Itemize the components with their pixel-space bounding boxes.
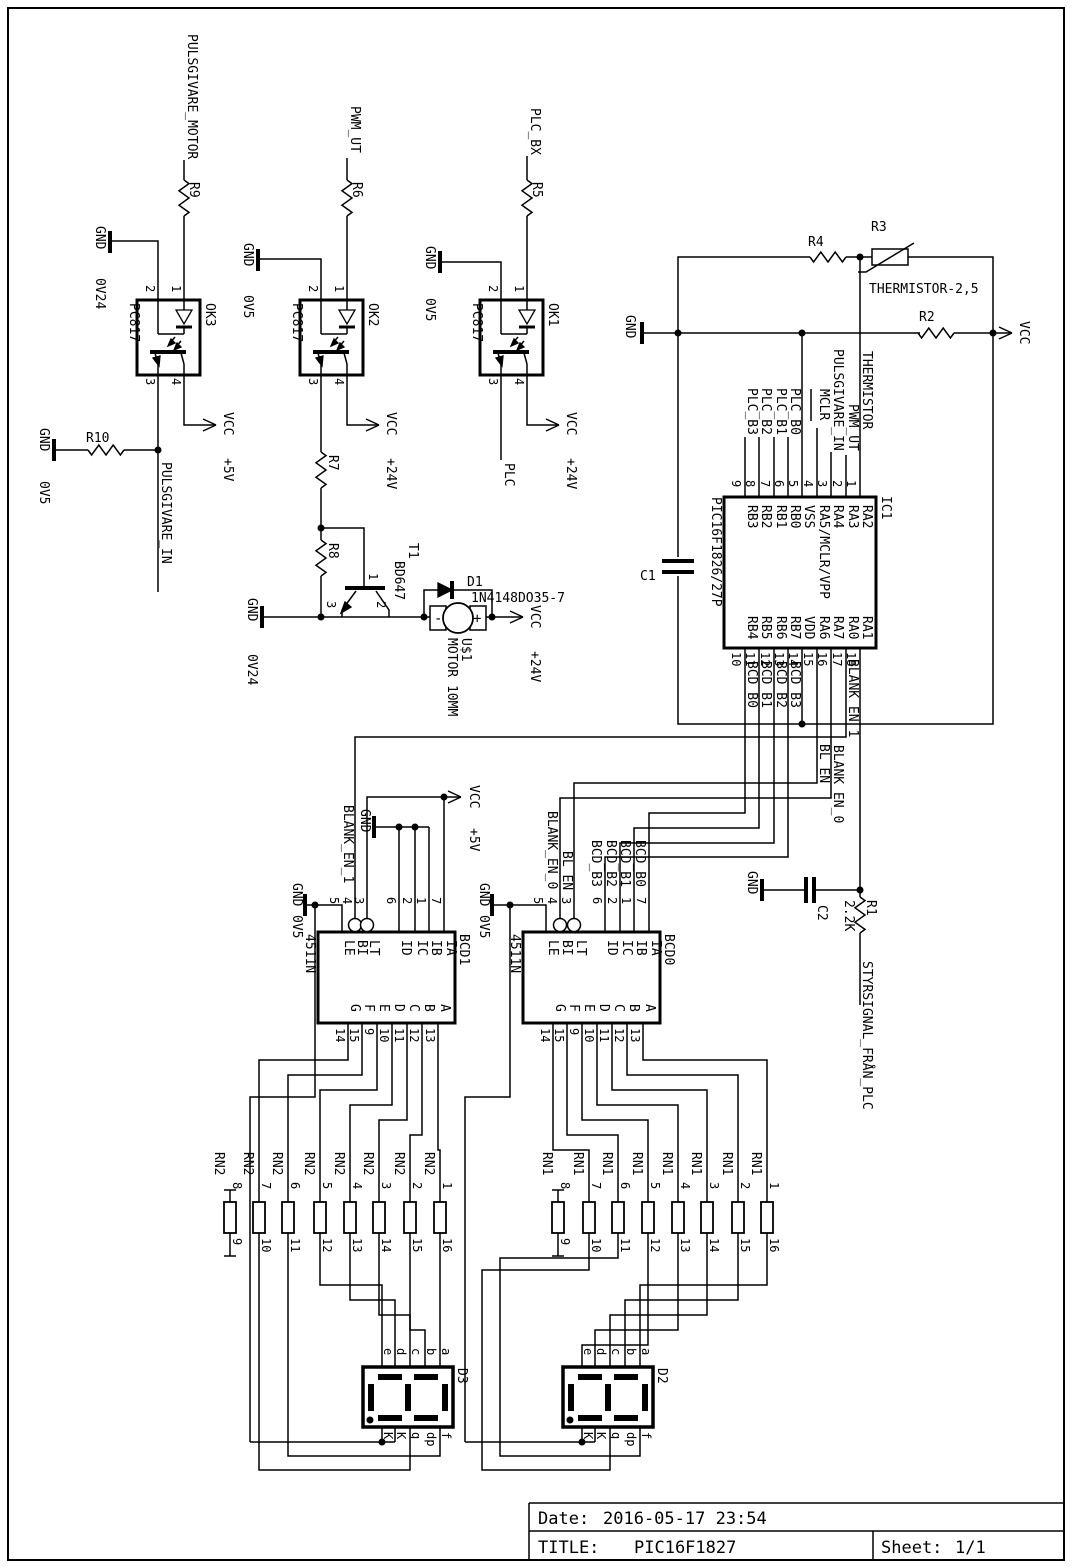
bcd0-pin4: 4 xyxy=(545,897,559,904)
ok3-gnd-label: GND xyxy=(92,226,107,250)
rn1-3-ref: RN1 xyxy=(599,1152,614,1175)
d3-pin-k1: K xyxy=(381,1432,395,1440)
ok1-vcc-value: +24V xyxy=(563,458,578,489)
vcc-main: VCC xyxy=(1016,321,1031,344)
net-plc-b2: PLC_B2 xyxy=(758,388,773,435)
bcd1-ic: IC xyxy=(414,940,429,956)
d3-pin-e: e xyxy=(381,1348,395,1355)
ok1-ref: OK1 xyxy=(545,303,560,326)
rn2-2-top: 7 xyxy=(259,1182,273,1189)
bcd1-pin1: 1 xyxy=(414,897,428,904)
bcd1-pin15: 15 xyxy=(347,1028,361,1042)
ok2-part-pc817: PC817 xyxy=(289,303,304,342)
rn1-6-ref: RN1 xyxy=(688,1152,703,1175)
bcd1-pin3: 3 xyxy=(352,897,366,904)
bcd0-pin15: 15 xyxy=(552,1028,566,1042)
ic1-ra3: RA3 xyxy=(845,505,860,528)
rn1-6-bottom: 14 xyxy=(707,1238,721,1252)
bcd0-net-bcd-b2: BCD_B2 xyxy=(603,840,618,887)
rn2-1-top: 8 xyxy=(230,1182,244,1189)
bcd1-pin6: 6 xyxy=(384,897,398,904)
r1-value: 2.2K xyxy=(841,900,856,931)
rn2-6-bottom: 14 xyxy=(379,1238,393,1252)
ic1-ra2: RA2 xyxy=(859,505,874,528)
d1-ref: D1 xyxy=(467,575,483,590)
rn2-6-top: 3 xyxy=(379,1182,393,1189)
net-bl-en-ic: BL_EN xyxy=(816,744,831,783)
net-bcd-b0-ic: BCD_B0 xyxy=(744,661,759,708)
d3-pin-f: f xyxy=(439,1432,453,1439)
d1-part: 1N4148DO35-7 xyxy=(471,591,565,606)
d3-pin-k2: K xyxy=(394,1432,408,1440)
rn2-2-bottom: 10 xyxy=(259,1238,273,1252)
ic1-rb3: RB3 xyxy=(744,505,759,528)
net-blank-en-0-ic: BLANK_EN_0 xyxy=(830,745,845,823)
ic1-pin2: 2 xyxy=(830,480,844,487)
rn1-5-bottom: 13 xyxy=(678,1238,692,1252)
bcd0-pin10: 10 xyxy=(582,1028,596,1042)
rn1-8-ref: RN1 xyxy=(748,1152,763,1175)
net-pulsgivare-in: PULSGIVARE_IN xyxy=(158,462,173,564)
rn1-1-top: 8 xyxy=(558,1182,572,1189)
ic1-rb4: RB4 xyxy=(744,616,759,640)
ok2-pin3: 3 xyxy=(306,378,320,385)
ic1-ra0: RA0 xyxy=(845,616,860,639)
bcd1-pin10: 10 xyxy=(377,1028,391,1042)
title-block-date-value: 2016-05-17 23:54 xyxy=(603,1509,767,1529)
bcd1-pin13: 13 xyxy=(423,1028,437,1042)
ok3-pin3: 3 xyxy=(143,378,157,385)
bcd0-part: 4511N xyxy=(507,934,522,973)
ok1-gnd-net-0v5: 0V5 xyxy=(422,298,437,321)
d3-pin-d: d xyxy=(394,1348,408,1355)
net-styrsignal: STYRSIGNAL_FRÅN_PLC xyxy=(859,961,875,1110)
ok1-pin4: 4 xyxy=(512,378,526,385)
bcd0-ia: IA xyxy=(648,940,663,956)
rn1-7-ref: RN1 xyxy=(719,1152,734,1175)
t1-ref: T1 xyxy=(405,543,420,559)
ic1-pin7: 7 xyxy=(758,480,772,487)
d2-pin-k2: K xyxy=(594,1432,608,1440)
ic1-pin1: 1 xyxy=(844,480,858,487)
ok2-pin1: 1 xyxy=(332,285,346,292)
r1-ref: R1 xyxy=(863,900,878,916)
ic1-rb6: RB6 xyxy=(773,616,788,639)
bcd0-pin13: 13 xyxy=(628,1028,642,1042)
net-mclr: MCLR xyxy=(816,389,831,420)
title-block-title-label: TITLE: xyxy=(538,1538,599,1558)
ic1-pin9: 9 xyxy=(729,480,743,487)
ic1-pin10: 10 xyxy=(729,652,743,666)
d2-pin-e: e xyxy=(581,1348,595,1355)
r4-ref: R4 xyxy=(808,235,824,250)
bcd0-net-bcd-b0: BCD_B0 xyxy=(632,840,647,887)
bcd0-le: LE xyxy=(545,940,560,956)
ok1-gnd-label: GND xyxy=(422,246,437,270)
rn2-5-ref: RN2 xyxy=(331,1152,346,1175)
bcd0-pin11: 11 xyxy=(597,1028,611,1042)
bcd1-ia: IA xyxy=(443,940,458,956)
rn2-7-bottom: 15 xyxy=(410,1238,424,1252)
bcd1-c: C xyxy=(406,1004,421,1012)
bcd0-f: F xyxy=(566,1004,581,1012)
rn1-5-ref: RN1 xyxy=(659,1152,674,1175)
motor-ref: U$1 xyxy=(458,638,473,661)
rn1-4-ref: RN1 xyxy=(629,1152,644,1175)
t1-part-bd647: BD647 xyxy=(391,561,406,600)
bcd1-pin14: 14 xyxy=(333,1028,347,1042)
rn1-2-ref: RN1 xyxy=(570,1152,585,1175)
bcd0-pin1: 1 xyxy=(619,897,633,904)
bcd0-d: D xyxy=(596,1004,611,1012)
bcd0-ic: IC xyxy=(619,940,634,956)
gnd-main: GND xyxy=(622,315,637,339)
ic1-ra6: RA6 xyxy=(816,616,831,639)
bcd1-net-blank-en-1: BLANK_EN_1 xyxy=(340,805,355,883)
r3-ref: R3 xyxy=(871,220,887,235)
bcd0-bi: BI xyxy=(559,940,574,956)
bcd1-le: LE xyxy=(341,940,356,956)
bcd1-pin9: 9 xyxy=(362,1028,376,1035)
rn2-7-top: 2 xyxy=(410,1182,424,1189)
ic1-rb2: RB2 xyxy=(758,505,773,528)
bcd0-pin9: 9 xyxy=(567,1028,581,1035)
net-plc-b3: PLC_B3 xyxy=(744,388,759,435)
rn2-8-top: 1 xyxy=(440,1182,454,1189)
bcd1-lt: LT xyxy=(366,940,381,956)
net-bcd-b2-ic: BCD_B2 xyxy=(773,661,788,708)
d2-pin-d: d xyxy=(594,1348,608,1355)
bcd0-c: C xyxy=(611,1004,626,1012)
r3-part: THERMISTOR-2,5 xyxy=(869,282,979,297)
ok3-ref: OK3 xyxy=(202,303,217,326)
net-bcd-b1-ic: BCD_B1 xyxy=(758,661,773,708)
title-block-sheet-label: Sheet: xyxy=(881,1538,942,1558)
title-block-title-value: PIC16F1827 xyxy=(634,1538,736,1558)
motor-plus: + xyxy=(473,611,481,627)
c2-ref: C2 xyxy=(814,905,829,921)
ok3-vcc: VCC xyxy=(220,412,235,435)
c2-gnd-label: GND xyxy=(744,871,759,895)
bcd1-pin4: 4 xyxy=(340,897,354,904)
ok1-part-pc817: PC817 xyxy=(469,303,484,342)
ic1-part: PIC16F1826/27P xyxy=(708,497,723,607)
rn2-4-ref: RN2 xyxy=(301,1152,316,1175)
rn2-7-ref: RN2 xyxy=(391,1152,406,1175)
bcd0-net-blank-en-0: BLANK_EN_0 xyxy=(544,811,559,889)
t1-pin2: 2 xyxy=(374,601,388,608)
ok3-r9-ref: R9 xyxy=(186,182,201,198)
ic1-pin3: 3 xyxy=(815,480,829,487)
d3-pin-g: g xyxy=(409,1432,423,1439)
ic1-ra1: RA1 xyxy=(859,616,874,639)
d2-pin-b: b xyxy=(624,1348,638,1355)
ok2-signal-net: PWM_UT xyxy=(347,106,362,153)
ok2-pin4: 4 xyxy=(332,378,346,385)
r10-gnd-label: GND xyxy=(36,428,51,452)
ok3-pin1: 1 xyxy=(169,285,183,292)
ic1-rb0: RB0 xyxy=(787,505,802,528)
motor-minus: - xyxy=(434,611,442,627)
rn1-5-top: 4 xyxy=(678,1182,692,1189)
bcd0-e: E xyxy=(581,1004,596,1012)
ok1-pin3: 3 xyxy=(486,378,500,385)
bcd0-b: B xyxy=(626,1004,641,1012)
bcd0-lt: LT xyxy=(573,940,588,956)
c1-ref: C1 xyxy=(640,569,656,584)
rn2-3-bottom: 11 xyxy=(288,1238,302,1252)
d3-pin-a: a xyxy=(439,1348,453,1355)
ok2-ref: OK2 xyxy=(365,303,380,326)
bcd1-pin5: 5 xyxy=(327,897,341,904)
bcd0-pin6: 6 xyxy=(590,897,604,904)
bcd1-id: ID xyxy=(398,940,413,956)
title-block-date-label: Date: xyxy=(538,1509,589,1529)
d2-pin-f: f xyxy=(639,1432,653,1439)
bcd1-gnd-label: GND xyxy=(289,883,304,907)
rn1-4-bottom: 12 xyxy=(648,1238,662,1252)
ic1-ra4: RA4 xyxy=(830,505,845,529)
ic1-pin16: 16 xyxy=(815,652,829,666)
bcd0-g: G xyxy=(552,1004,567,1012)
bcd0-id: ID xyxy=(604,940,619,956)
rn1-3-bottom: 11 xyxy=(618,1238,632,1252)
schematic-canvas: PULSGIVARE_MOTORR9GND0V2421PC817OK334VCC… xyxy=(0,0,1072,1567)
bcd1-gnd-net-0v5: 0V5 xyxy=(289,915,304,938)
r10-gnd-net-0v5: 0V5 xyxy=(36,481,51,504)
rn2-4-top: 5 xyxy=(320,1182,334,1189)
t1-pin1: 1 xyxy=(366,573,380,580)
rn1-1-ref: RN1 xyxy=(539,1152,554,1175)
ok1-pin2: 2 xyxy=(486,285,500,292)
bcd0-pin14: 14 xyxy=(538,1028,552,1042)
ic1-ref: IC1 xyxy=(878,496,893,519)
ok3-gnd-net-0v24: 0V24 xyxy=(92,278,107,309)
ok3-pin2: 2 xyxy=(143,285,157,292)
rn1-8-top: 1 xyxy=(767,1182,781,1189)
bcd0-net-bcd-b3: BCD_B3 xyxy=(588,840,603,887)
bcd0-net-bl-en: BL_EN xyxy=(559,851,574,890)
ic1-vss: VSS xyxy=(801,505,816,528)
rn1-6-top: 3 xyxy=(707,1182,721,1189)
bcd0-gnd-net-0v5: 0V5 xyxy=(476,915,491,938)
bcd1-d: D xyxy=(391,1004,406,1012)
rn2-1-bottom: 9 xyxy=(230,1238,244,1245)
ok1-out-net-plc: PLC xyxy=(501,463,516,486)
ok2-pin2: 2 xyxy=(306,285,320,292)
rn2-5-top: 4 xyxy=(350,1182,364,1189)
bcd1-vcc: VCC xyxy=(466,785,481,808)
ok2-gnd-net-0v5: 0V5 xyxy=(240,295,255,318)
ic1-ra7: RA7 xyxy=(830,616,845,639)
t1-pin3: 3 xyxy=(324,601,338,608)
d2-pin-dp: dp xyxy=(624,1432,638,1446)
page-background xyxy=(0,0,1072,1567)
r8-ref: R8 xyxy=(325,543,340,559)
d3-pin-dp: dp xyxy=(424,1432,438,1446)
ic1-pin17: 17 xyxy=(830,652,844,666)
net-pulsgivare-in-ic: PULSGIVARE_IN xyxy=(830,349,845,451)
title-block-sheet-value: 1/1 xyxy=(955,1538,986,1558)
ic1-pin5: 5 xyxy=(786,480,800,487)
r2-ref: R2 xyxy=(919,310,935,325)
bcd0-pin12: 12 xyxy=(612,1028,626,1042)
d3-pin-c: c xyxy=(409,1348,423,1355)
t1-gnd-label: GND xyxy=(244,598,259,622)
rn2-1-ref: RN2 xyxy=(211,1152,226,1175)
bcd0-ib: IB xyxy=(633,940,648,956)
bcd1-a: A xyxy=(437,1004,452,1012)
bcd0-net-bcd-b1: BCD_B1 xyxy=(617,840,632,887)
d2-pin-a: a xyxy=(639,1348,653,1355)
ic1-rb5: RB5 xyxy=(758,616,773,639)
bcd0-pin3: 3 xyxy=(559,897,573,904)
ic1-pin15: 15 xyxy=(801,652,815,666)
bcd0-pin2: 2 xyxy=(605,897,619,904)
net-pwm-ut-ic: PWM_UT xyxy=(845,404,860,451)
ok2-r6-ref: R6 xyxy=(349,182,364,198)
net-plc-b0: PLC_B0 xyxy=(787,388,802,435)
net-bcd-b3-ic: BCD_B3 xyxy=(787,661,802,708)
motor-vcc: VCC xyxy=(527,605,542,628)
ic1-pin6: 6 xyxy=(772,480,786,487)
d2-pin-g: g xyxy=(609,1432,623,1439)
net-blank-en-1-ic: BLANK_EN_1 xyxy=(845,659,860,737)
rn1-8-bottom: 16 xyxy=(767,1238,781,1252)
net-thermistor: THERMISTOR xyxy=(859,351,874,429)
ic1-rb1: RB1 xyxy=(773,505,788,528)
rn1-2-bottom: 10 xyxy=(589,1238,603,1252)
bcd1-pin12: 12 xyxy=(407,1028,421,1042)
ic1-pin8: 8 xyxy=(743,480,757,487)
rn1-3-top: 6 xyxy=(618,1182,632,1189)
bcd0-a: A xyxy=(642,1004,657,1012)
bcd1-e: E xyxy=(376,1004,391,1012)
rn2-8-bottom: 16 xyxy=(440,1238,454,1252)
bcd0-gnd-label: GND xyxy=(476,883,491,907)
bcd1-part: 4511N xyxy=(302,934,317,973)
rn2-2-ref: RN2 xyxy=(240,1152,255,1175)
d2-pin-c: c xyxy=(609,1348,623,1355)
rn2-8-ref: RN2 xyxy=(421,1152,436,1175)
ok3-part-pc817: PC817 xyxy=(126,303,141,342)
ok3-vcc-value: +5V xyxy=(220,458,235,482)
ok2-vcc: VCC xyxy=(383,412,398,435)
bcd0-pin7: 7 xyxy=(634,897,648,904)
bcd1-pin7: 7 xyxy=(429,897,443,904)
bcd1-ib: IB xyxy=(428,940,443,956)
ok1-pin1: 1 xyxy=(512,285,526,292)
bcd1-inner-gnd: GND xyxy=(357,809,372,833)
t1-gnd-net-0v24: 0V24 xyxy=(244,654,259,685)
ic1-ra5: RA5/MCLR/VPP xyxy=(816,505,831,599)
bcd1-f: F xyxy=(361,1004,376,1012)
rn2-3-ref: RN2 xyxy=(269,1152,284,1175)
rn1-7-top: 2 xyxy=(738,1182,752,1189)
rn1-1-bottom: 9 xyxy=(558,1238,572,1245)
rn2-6-ref: RN2 xyxy=(360,1152,375,1175)
d2-pin-k1: K xyxy=(581,1432,595,1440)
ic1-rb7: RB7 xyxy=(787,616,802,639)
d2-ref: D2 xyxy=(654,1368,669,1384)
d3-pin-b: b xyxy=(424,1348,438,1355)
ok2-vcc-value: +24V xyxy=(383,458,398,489)
ok3-pin4: 4 xyxy=(169,378,183,385)
rn1-4-top: 5 xyxy=(648,1182,662,1189)
ok1-vcc: VCC xyxy=(563,412,578,435)
motor-part: MOTOR 10MM xyxy=(444,638,459,716)
ok2-gnd-label: GND xyxy=(240,243,255,267)
ic1-vdd: VDD xyxy=(801,616,816,640)
rn2-5-bottom: 13 xyxy=(350,1238,364,1252)
ok1-signal-net: PLC_BX xyxy=(527,108,542,155)
bcd1-vcc-value: +5V xyxy=(466,828,481,852)
ok1-r5-ref: R5 xyxy=(529,182,544,198)
bcd1-pin11: 11 xyxy=(392,1028,406,1042)
bcd1-pin2: 2 xyxy=(400,897,414,904)
bcd1-b: B xyxy=(421,1004,436,1012)
rn2-3-top: 6 xyxy=(288,1182,302,1189)
r10-ref: R10 xyxy=(86,431,109,446)
schematic-page: PULSGIVARE_MOTORR9GND0V2421PC817OK334VCC… xyxy=(0,0,1072,1567)
rn1-7-bottom: 15 xyxy=(738,1238,752,1252)
r7-ref: R7 xyxy=(325,455,340,471)
rn1-2-top: 7 xyxy=(589,1182,603,1189)
bcd0-pin5: 5 xyxy=(531,897,545,904)
ic1-pin4: 4 xyxy=(801,480,815,487)
bcd1-g: G xyxy=(347,1004,362,1012)
net-plc-b1: PLC_B1 xyxy=(773,388,788,435)
d3-ref: D3 xyxy=(454,1368,469,1384)
ok3-signal-net: PULSGIVARE_MOTOR xyxy=(184,34,199,159)
motor-vcc-value: +24V xyxy=(527,651,542,682)
rn2-4-bottom: 12 xyxy=(320,1238,334,1252)
